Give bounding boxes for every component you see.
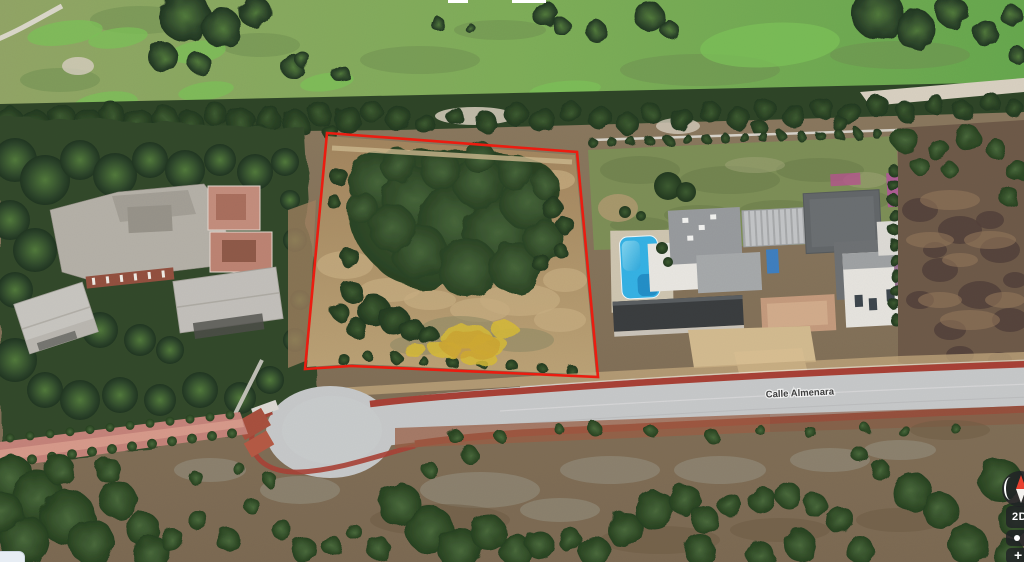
my-location-button[interactable]: [1006, 530, 1024, 546]
map-credit-chip: [0, 551, 25, 562]
view-toggle-2d-button[interactable]: 2D: [1006, 506, 1024, 528]
top-edge-artifact: [448, 0, 468, 3]
google-earth-viewport: Calle Almenara 2D +: [0, 0, 1024, 562]
top-edge-artifact: [512, 0, 546, 3]
compass-south-needle-icon: [1016, 489, 1024, 503]
compass-north-needle-icon: [1016, 475, 1024, 489]
zoom-in-button[interactable]: +: [1006, 548, 1024, 562]
my-location-dot-icon: [1014, 535, 1020, 541]
imagery-grain: [0, 0, 1024, 562]
aerial-map[interactable]: Calle Almenara: [0, 0, 1024, 562]
